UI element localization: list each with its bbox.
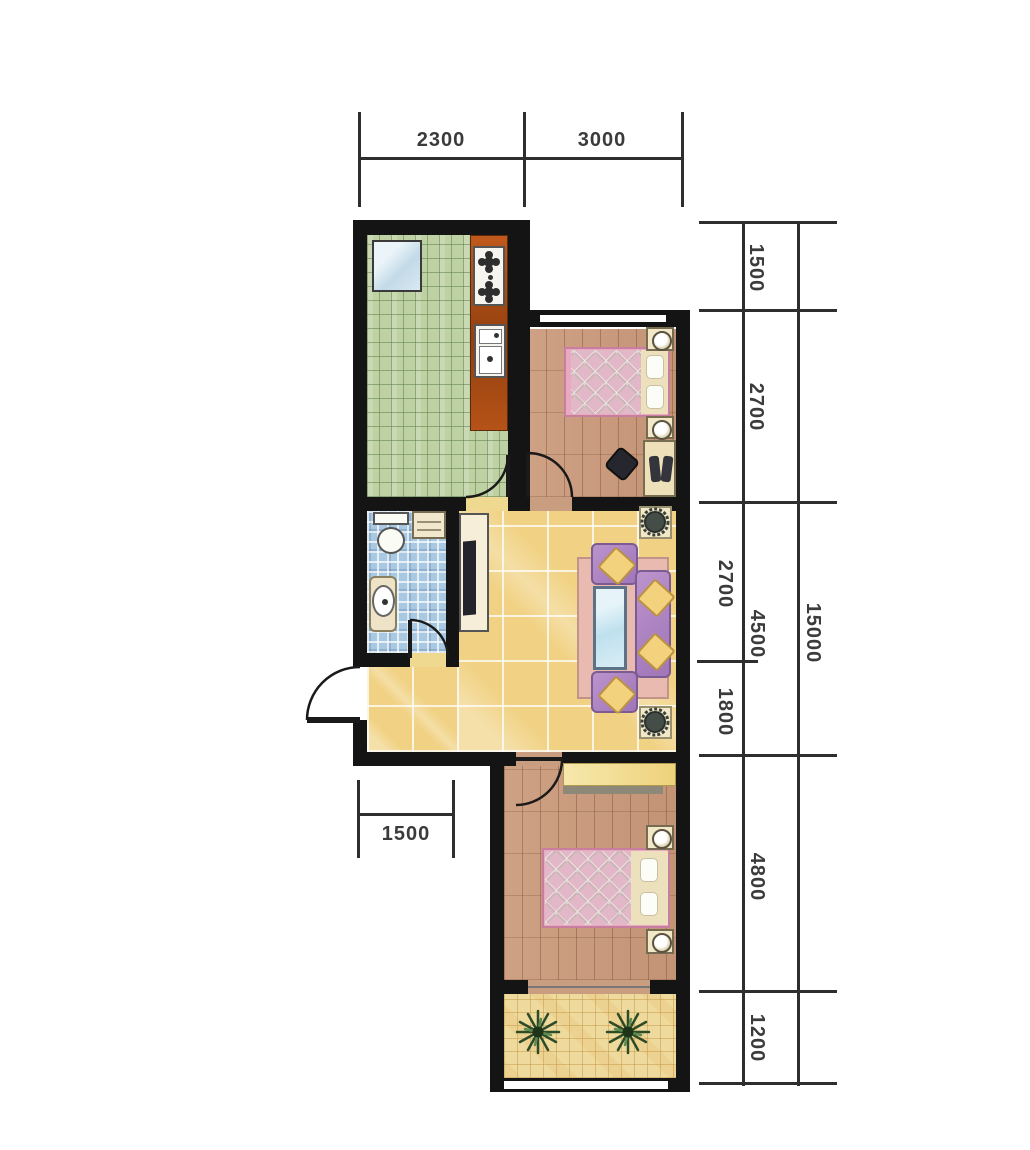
basin-drain-dot <box>382 599 388 605</box>
dim-label-1800: 1800 <box>713 652 737 772</box>
dim-right-tick-2 <box>699 309 837 312</box>
bedroom1-bed <box>564 347 670 417</box>
bed2-pillow-icon <box>640 858 658 882</box>
bedroom1-door-threshold <box>528 497 572 511</box>
wall-kitchen-right <box>508 220 530 511</box>
cushion-icon <box>636 578 676 618</box>
armchair-top <box>591 543 638 585</box>
washer-cabinet <box>412 511 446 539</box>
bedroom1-window <box>540 315 666 322</box>
kitchen-door-threshold <box>466 497 508 511</box>
dim-label-3000: 3000 <box>542 128 662 152</box>
bedroom1-nightstand-bottom <box>646 416 674 439</box>
bed1-pillow-icon <box>646 355 664 379</box>
stove-knob-icon <box>488 275 493 280</box>
wall-kitchen-top <box>353 220 530 235</box>
hanging-clothes-icon <box>649 456 662 483</box>
balcony-floor <box>504 994 676 1078</box>
washer-line <box>417 521 441 523</box>
stove <box>473 246 505 306</box>
wall-bathroom-bottom <box>353 653 410 667</box>
bedroom2-nightstand-top <box>646 825 674 850</box>
plant-stand-bottom <box>639 706 672 739</box>
washer-line2 <box>417 529 441 531</box>
dim-right-tick-1 <box>699 221 837 224</box>
dim-label-4500: 4500 <box>745 574 769 694</box>
bedroom2-door-threshold <box>516 752 562 766</box>
balcony-door-threshold <box>528 980 650 994</box>
bed1-pillow-icon <box>646 385 664 409</box>
tv <box>463 540 476 615</box>
dim-label-1500-bottom: 1500 <box>346 822 466 846</box>
wall-bathroom-right <box>446 497 459 667</box>
dim-top-line <box>358 157 684 160</box>
bed2-quilt <box>545 851 631 925</box>
kitchen-sink <box>474 324 506 378</box>
hanging-clothes-icon <box>660 455 673 482</box>
toilet-bowl <box>377 527 405 554</box>
dim-top-tick-1 <box>358 112 361 207</box>
plant-stand-top <box>639 506 672 539</box>
bedroom1-wardrobe <box>643 440 676 497</box>
dim-label-4800: 4800 <box>745 817 769 937</box>
dim-bottom-line <box>358 813 455 816</box>
bathroom-door-threshold <box>410 653 446 667</box>
sink-drain-dot <box>487 356 493 362</box>
wall-right-exterior <box>676 310 690 1092</box>
bedroom1-nightstand-top <box>646 327 674 351</box>
dim-right-tick-3 <box>699 501 837 504</box>
armchair-bottom <box>591 671 638 713</box>
dim-right-line-outer <box>797 222 800 1086</box>
bedroom2-desk-shelf <box>563 786 663 794</box>
dim-top-tick-2 <box>523 112 526 207</box>
bedroom2-bed <box>542 848 670 928</box>
lamp-icon <box>652 331 672 351</box>
wall-balcony-stub-right <box>650 980 676 994</box>
lamp-icon <box>652 420 672 440</box>
toilet-tank <box>373 512 409 525</box>
bed2-pillow-icon <box>640 892 658 916</box>
cushion-icon <box>597 546 637 586</box>
sofa-right <box>635 570 671 678</box>
cushion-icon <box>636 632 676 672</box>
lamp-icon <box>652 933 672 953</box>
stove-burner-bottom-icon <box>484 287 494 297</box>
lamp-icon <box>652 829 672 849</box>
coffee-table <box>593 586 627 670</box>
dim-label-2700-b: 2700 <box>713 524 737 644</box>
dim-label-15000-total: 15000 <box>801 573 825 693</box>
dim-bottom-tick-2 <box>452 780 455 858</box>
balcony-railing-window <box>504 1081 668 1089</box>
dim-top-tick-3 <box>681 112 684 207</box>
bedroom2-nightstand-bottom <box>646 929 674 954</box>
wall-bedroom2-left <box>490 752 504 1092</box>
wall-left-upper <box>353 220 367 667</box>
stove-burner-top-icon <box>484 257 494 267</box>
dim-bottom-tick-1 <box>357 780 360 858</box>
dim-label-1500-right: 1500 <box>744 208 768 328</box>
bedroom2-desk <box>563 763 676 786</box>
dim-label-2300: 2300 <box>381 128 501 152</box>
dim-label-2700-a: 2700 <box>744 347 768 467</box>
entrance-door <box>307 667 360 720</box>
sink-faucet-dot <box>494 333 499 338</box>
wash-basin-bowl <box>372 585 395 617</box>
refrigerator <box>372 240 422 292</box>
floor-plan-canvas: 2300 3000 1500 2700 2700 4500 1800 4800 … <box>0 0 1030 1150</box>
bed1-quilt <box>571 350 641 414</box>
hallway-floor <box>367 667 457 752</box>
dim-label-1200: 1200 <box>745 978 769 1098</box>
cushion-icon <box>597 675 637 715</box>
wall-balcony-stub-left <box>504 980 528 994</box>
